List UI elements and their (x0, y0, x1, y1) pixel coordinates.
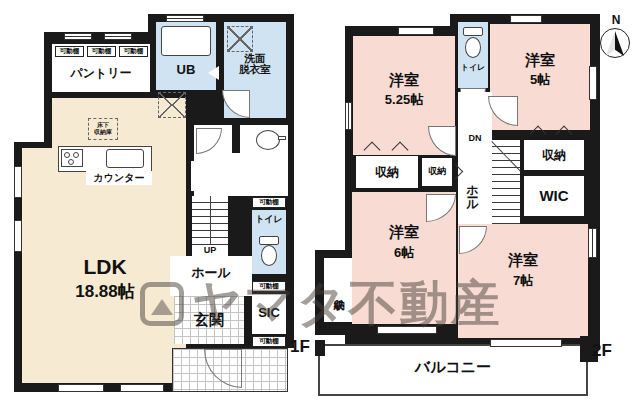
window (14, 220, 22, 252)
burner-icon (68, 159, 74, 165)
room-ldk (52, 98, 186, 383)
ldk-size-label: 18.88帖 (40, 281, 170, 303)
shelf-label-box: 可動棚 (119, 46, 148, 57)
shelf-label: 可動棚 (259, 282, 279, 291)
room525-size: 5.25帖 (353, 91, 455, 109)
shelf-label: 可動棚 (60, 47, 80, 56)
window (64, 33, 92, 40)
window (589, 66, 597, 100)
stove-icon (61, 149, 83, 167)
wall-segment (232, 125, 240, 153)
washbasin-icon (256, 130, 280, 150)
shelf-label-box: 可動棚 (252, 281, 286, 292)
entrance-label: 玄関 (174, 306, 244, 334)
room-label-pantry: パントリー (52, 60, 150, 86)
window (398, 27, 434, 35)
hall-label-2f: ホール (464, 160, 480, 222)
shelf-label: 可動棚 (92, 47, 112, 56)
window (166, 15, 204, 22)
room7-size: 7帖 (458, 272, 588, 290)
shelf-label-box: 可動棚 (252, 197, 286, 208)
shelf-label: 可動棚 (124, 47, 144, 56)
toilet-tank-icon (463, 27, 483, 36)
wall-segment (315, 340, 325, 356)
burner-icon (73, 152, 79, 158)
toilet-bowl-icon (261, 245, 277, 266)
burner-icon (64, 152, 70, 158)
window (510, 15, 542, 23)
stairs-2f (492, 140, 520, 225)
window (588, 228, 597, 258)
storage-label: 収納 (524, 142, 584, 168)
door-notch-icon (208, 66, 219, 80)
room525-name: 洋室 (353, 70, 455, 90)
stairs-dn-label: DN (460, 133, 490, 144)
bathtub-icon (161, 26, 211, 56)
room6-size: 6帖 (352, 244, 456, 262)
room5-size: 5帖 (490, 71, 590, 89)
floor2-label: 2F (592, 340, 626, 362)
storage-label: 収納 (356, 158, 418, 186)
room6-name: 洋室 (352, 222, 456, 242)
window (104, 33, 132, 40)
room-label-ub: UB (156, 58, 216, 82)
compass-north-label: N (604, 13, 628, 27)
room7-name: 洋室 (458, 250, 588, 270)
window (14, 166, 22, 198)
room5-name: 洋室 (490, 50, 590, 70)
toilet-label-2f: トイレ (457, 62, 489, 74)
toilet-tank-icon (259, 236, 279, 245)
ldk-name-label: LDK (40, 254, 170, 281)
shelf-label: 可動棚 (259, 198, 279, 207)
toilet-label-1f: トイレ (252, 214, 286, 226)
window (377, 326, 437, 334)
window (490, 339, 562, 347)
storage-label: 収納 (330, 264, 346, 316)
sic-label: SIC (252, 298, 286, 328)
shelf-label-box: 可動棚 (55, 46, 84, 57)
faucet-icon (278, 136, 286, 140)
hall-label-1f: ホール (172, 260, 250, 286)
shelf-label-box: 可動棚 (252, 336, 286, 347)
balcony-label: バルコニー (318, 352, 588, 382)
attic-hatch-icon (158, 92, 186, 118)
counter-label: カウンター (86, 171, 152, 185)
window (58, 384, 104, 392)
sink-icon (106, 149, 144, 168)
shelf-label: 可動棚 (259, 337, 279, 346)
window (120, 384, 164, 392)
room-label-washroom: 洗面 脱衣室 (224, 48, 286, 80)
underfloor-line1: 床下 (97, 122, 109, 129)
underfloor-storage-box: 床下 収納庫 (88, 118, 118, 140)
shelf-label-box: 可動棚 (87, 46, 116, 57)
window (345, 102, 352, 130)
stairs-center-line (210, 196, 211, 246)
washroom-line2: 脱衣室 (239, 64, 271, 75)
underfloor-line2: 収納庫 (94, 129, 112, 136)
wic-label: WIC (524, 180, 584, 212)
floor-plan: 可動棚 可動棚 可動棚 パントリー UB 洗面 脱衣室 床下 収納庫 (0, 0, 640, 413)
toilet-bowl-icon (465, 37, 481, 58)
